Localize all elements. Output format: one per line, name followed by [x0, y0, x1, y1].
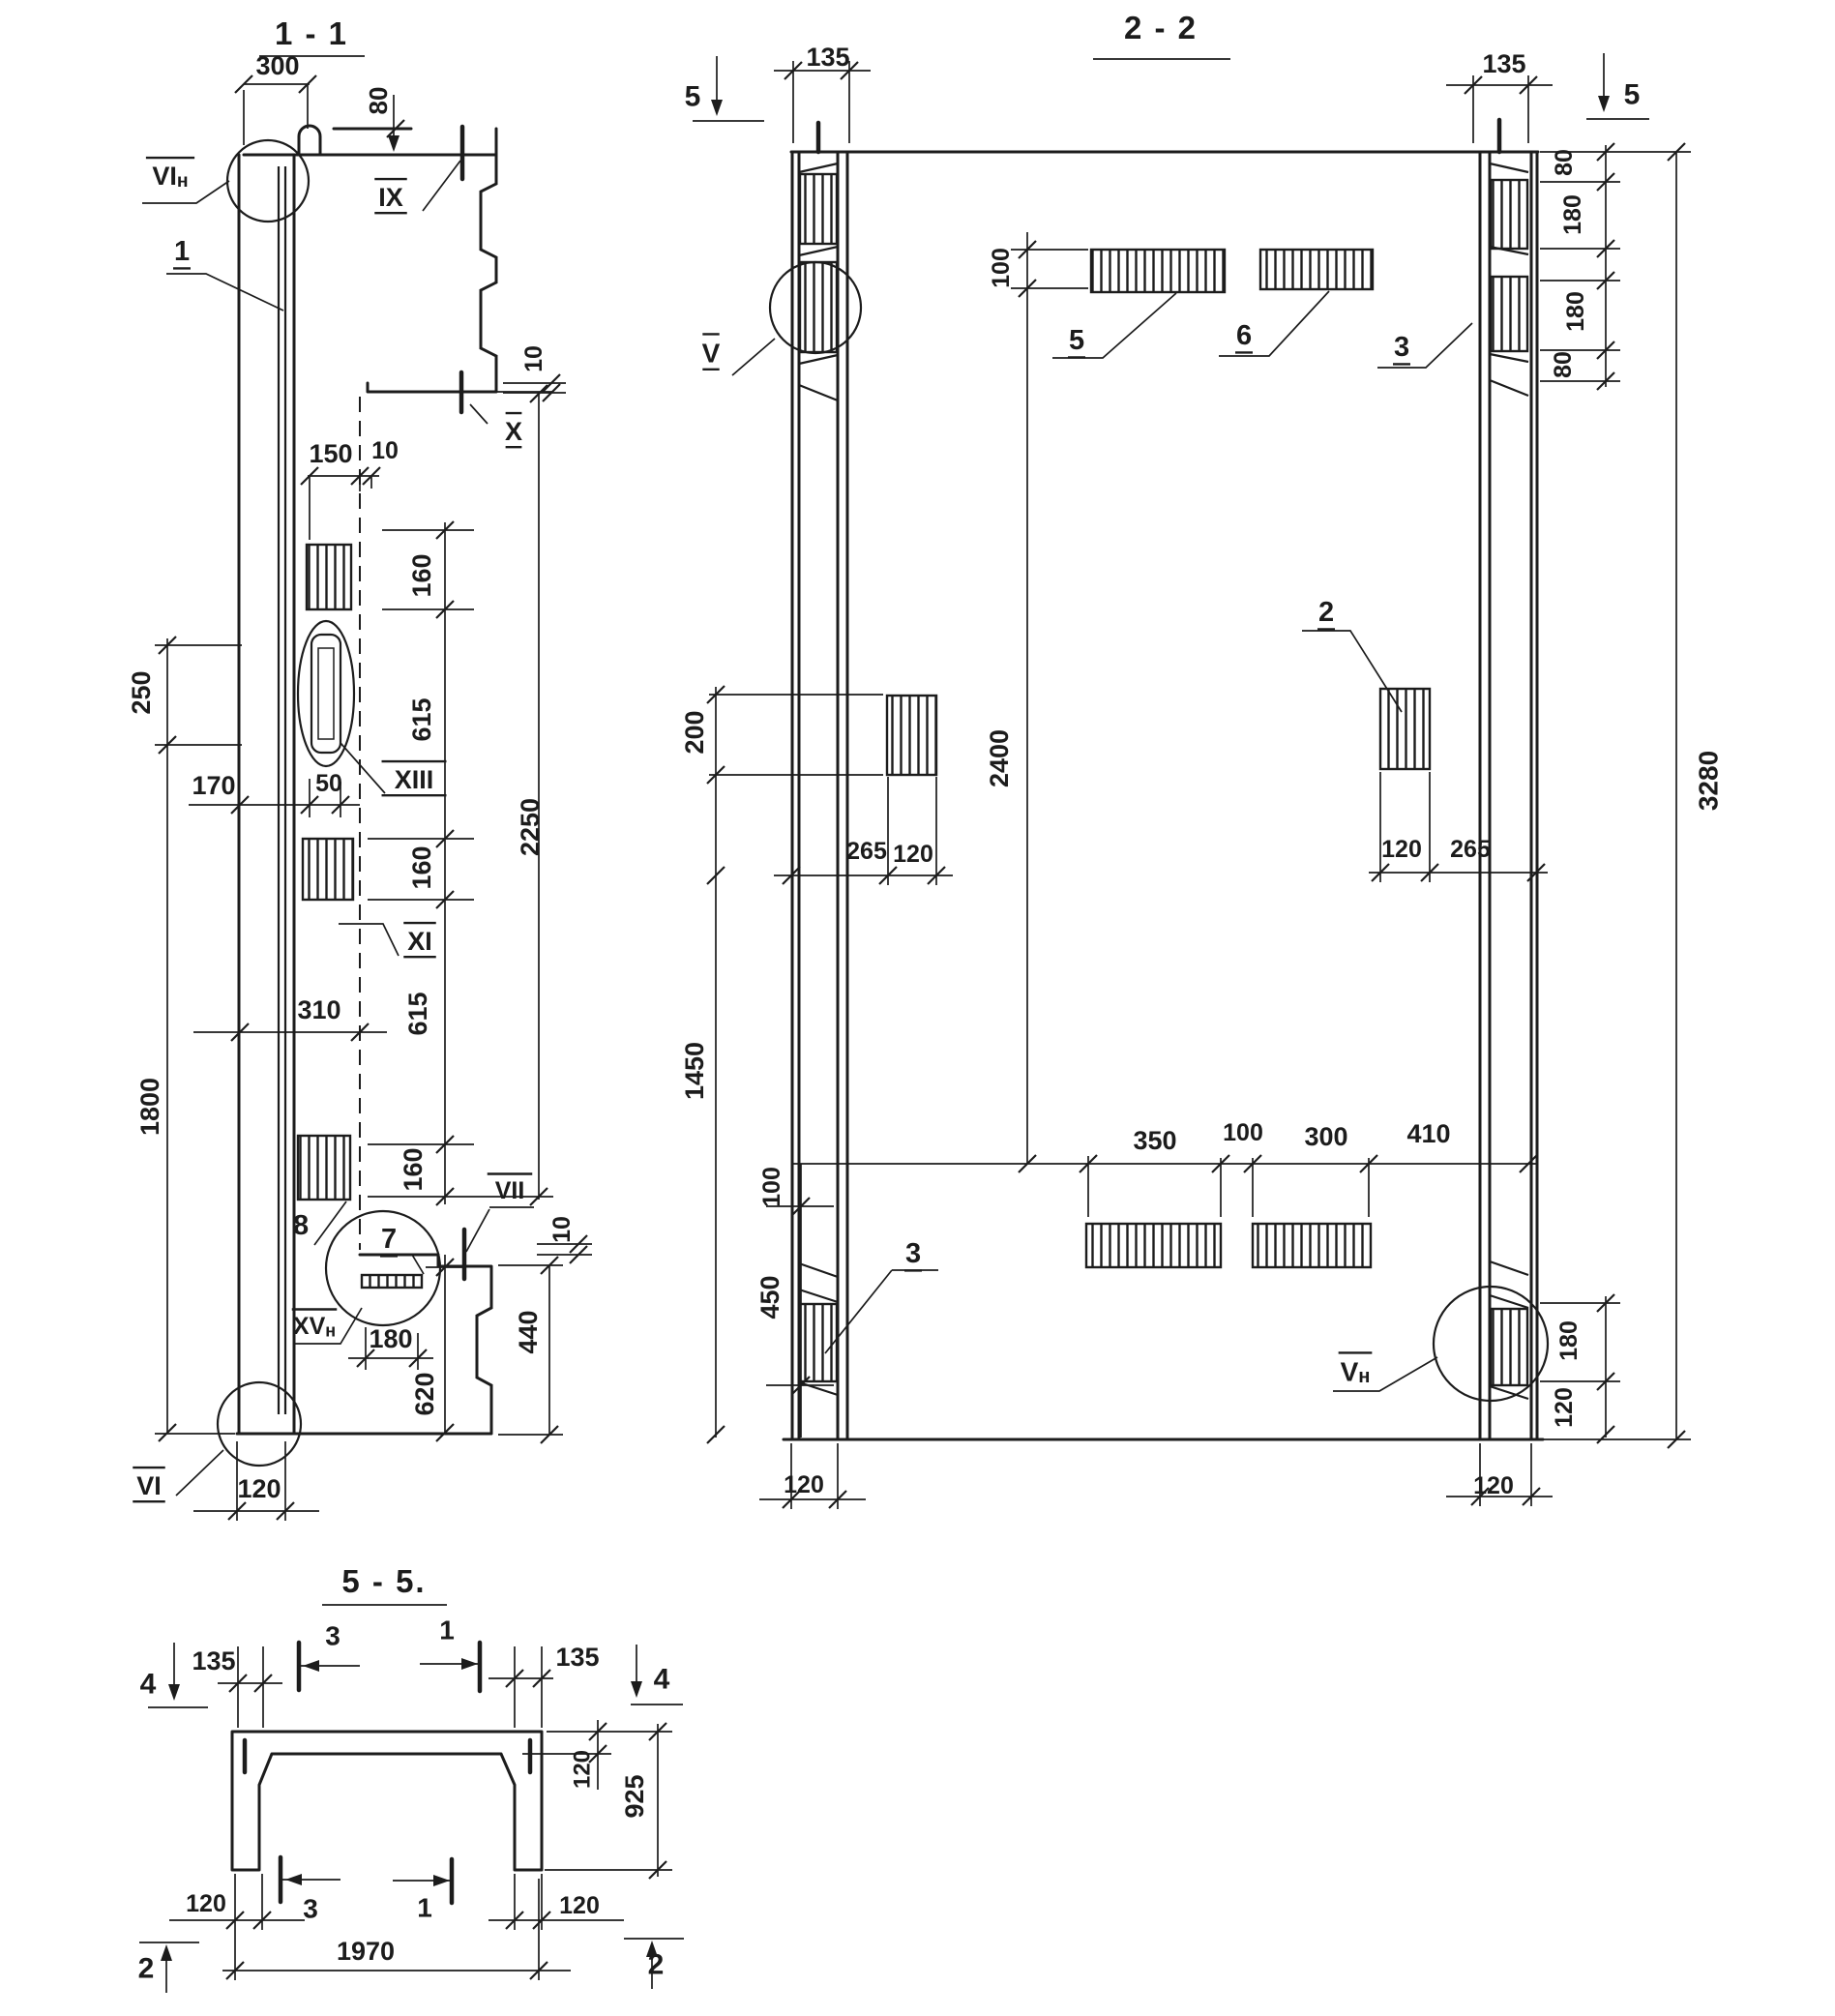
svg-text:1: 1 [439, 1616, 455, 1645]
dim-310: 310 [297, 995, 340, 1024]
svg-text:80: 80 [1551, 149, 1578, 176]
rib-embed-plate [800, 262, 837, 352]
dim-120: 120 [1473, 1472, 1514, 1499]
section-cut-2: 2 [138, 1953, 155, 1985]
svg-text:2: 2 [138, 1953, 155, 1985]
dim-135: 135 [555, 1643, 599, 1672]
section-1-1: 1 - 1 [142, 15, 592, 1521]
svg-text:1450: 1450 [680, 1042, 709, 1100]
dimension-ticks-5-5 [226, 1670, 666, 1979]
detail-oval-xiii [298, 621, 354, 766]
svg-text:160: 160 [407, 845, 436, 889]
dim-135: 135 [192, 1646, 235, 1675]
svg-text:10: 10 [548, 1216, 576, 1243]
svg-text:100: 100 [1223, 1119, 1263, 1146]
section-cut-1: 1 [417, 1893, 432, 1923]
dim-100: 100 [1223, 1119, 1263, 1146]
svg-text:VI: VI [136, 1471, 162, 1500]
dim-80: 80 [1550, 351, 1577, 378]
structural-drawing: 1 - 1 [0, 0, 1835, 2016]
svg-text:2: 2 [1318, 597, 1334, 628]
svg-text:100: 100 [758, 1167, 785, 1207]
rib-embed-plate [1491, 180, 1527, 249]
svg-text:620: 620 [410, 1372, 439, 1415]
dim-120: 120 [893, 841, 933, 868]
arrow-down-80 [388, 135, 400, 152]
dim-135: 135 [1482, 49, 1525, 78]
dim-170: 170 [192, 771, 235, 800]
view-ref-ix: IX [374, 179, 406, 213]
svg-text:80: 80 [364, 87, 393, 115]
svg-text:2400: 2400 [985, 729, 1014, 787]
part-ref-3: 3 [904, 1238, 922, 1270]
dim-620: 620 [410, 1372, 439, 1415]
svg-text:350: 350 [1133, 1126, 1176, 1155]
svg-text:135: 135 [1482, 49, 1525, 78]
svg-text:7: 7 [381, 1224, 397, 1255]
section-2-2: 2 - 2 [693, 10, 1691, 1509]
section-cut-dashes [461, 127, 464, 1279]
svg-text:120: 120 [570, 1750, 596, 1789]
rebar-lines [279, 166, 285, 1414]
svg-text:135: 135 [555, 1643, 599, 1672]
dim-1450: 1450 [680, 1042, 709, 1100]
svg-text:5: 5 [1069, 325, 1084, 356]
dim-450: 450 [755, 1275, 784, 1319]
view-ref-xi: XI [403, 923, 435, 957]
section-cut-3: 3 [303, 1894, 318, 1924]
rib-taper-lines [799, 163, 1528, 1399]
rebar-stubs [818, 120, 1499, 152]
section-title-5-5: 5 - 5. [341, 1563, 426, 1599]
svg-text:170: 170 [192, 771, 235, 800]
embed-plate [1086, 1224, 1221, 1267]
view-ref-vi: VI [133, 1468, 164, 1501]
svg-text:1: 1 [417, 1893, 432, 1923]
dim-100: 100 [758, 1167, 785, 1207]
dim-50: 50 [315, 770, 342, 797]
dim-150: 150 [309, 439, 352, 468]
view-ref-v: V [702, 334, 721, 369]
svg-text:2: 2 [648, 1949, 665, 1981]
svg-text:120: 120 [186, 1890, 226, 1917]
svg-text:250: 250 [127, 670, 156, 714]
part-ref-1: 1 [173, 236, 191, 268]
dim-80: 80 [364, 87, 393, 115]
svg-text:5: 5 [1624, 79, 1641, 111]
rib-embed-plate [1491, 1309, 1527, 1385]
svg-text:615: 615 [407, 697, 436, 741]
section-arrow-5-left [711, 100, 723, 116]
svg-text:1800: 1800 [135, 1078, 164, 1136]
embed-plate-5 [1091, 250, 1225, 292]
dim-2250: 2250 [516, 798, 545, 856]
dim-925: 925 [620, 1774, 649, 1818]
section-arrow-1-top [461, 1658, 478, 1670]
svg-text:10: 10 [520, 345, 548, 372]
svg-text:160: 160 [399, 1147, 428, 1191]
svg-text:120: 120 [1551, 1387, 1578, 1428]
dim-265: 265 [846, 838, 887, 865]
keyway-plate [303, 839, 353, 900]
svg-text:XIII: XIII [395, 765, 434, 794]
dim-120: 120 [784, 1471, 824, 1498]
embed-plate-6 [1260, 250, 1373, 289]
svg-text:3: 3 [325, 1621, 340, 1651]
svg-text:615: 615 [403, 992, 432, 1035]
dim-120: 120 [570, 1750, 596, 1789]
svg-text:450: 450 [755, 1275, 784, 1319]
section-cut-4: 4 [140, 1669, 157, 1701]
svg-text:310: 310 [297, 995, 340, 1024]
svg-text:VIн: VIн [152, 162, 188, 192]
dim-10: 10 [548, 1216, 576, 1243]
svg-text:440: 440 [514, 1310, 543, 1353]
dim-265: 265 [1450, 836, 1491, 863]
dim-1800: 1800 [135, 1078, 164, 1136]
section-arrow-2-left [161, 1944, 172, 1961]
dim-180: 180 [1555, 1320, 1583, 1361]
embed-plate [1253, 1224, 1371, 1267]
dim-2400: 2400 [985, 729, 1014, 787]
svg-text:V: V [702, 339, 721, 369]
dim-440: 440 [514, 1310, 543, 1353]
dim-180: 180 [1562, 291, 1589, 332]
part-ref-5: 5 [1068, 325, 1085, 357]
section-mark-bars [281, 1643, 480, 1903]
dim-135: 135 [806, 43, 849, 72]
section-cut-4: 4 [654, 1664, 670, 1696]
svg-text:1970: 1970 [337, 1937, 395, 1966]
svg-text:135: 135 [192, 1646, 235, 1675]
panel-outline-1-1 [237, 126, 496, 1434]
channel-outline-5-5 [232, 1732, 542, 1870]
section-cut-1: 1 [439, 1616, 455, 1645]
part-ref-7: 7 [380, 1224, 398, 1256]
svg-text:180: 180 [1562, 291, 1589, 332]
detail-circle-vi [218, 1382, 301, 1466]
section-cut-5: 5 [685, 81, 701, 113]
labels-layer: 30080VIнIX1X1015010160615XIII25017050160… [127, 43, 1724, 1985]
section-title-1-1: 1 - 1 [275, 15, 348, 51]
dim-120: 120 [186, 1890, 226, 1917]
dim-120: 120 [559, 1892, 600, 1919]
svg-text:265: 265 [846, 838, 887, 865]
rib-embed-plate [800, 174, 837, 244]
svg-text:160: 160 [407, 553, 436, 597]
svg-text:300: 300 [1304, 1122, 1347, 1151]
svg-text:6: 6 [1236, 320, 1252, 351]
dimension-lines-5-5 [139, 1643, 684, 1993]
rib-embed-plate [1491, 277, 1527, 351]
dim-3280: 3280 [1694, 751, 1724, 811]
svg-text:925: 925 [620, 1774, 649, 1818]
svg-text:4: 4 [140, 1669, 157, 1701]
svg-text:4: 4 [654, 1664, 670, 1696]
svg-text:X: X [505, 417, 522, 446]
section-arrow-4-right [631, 1681, 642, 1698]
dim-250: 250 [127, 670, 156, 714]
dim-10: 10 [371, 437, 399, 464]
rebar-dashes [245, 1740, 530, 1772]
section-arrow-3-bottom [285, 1874, 302, 1885]
svg-text:XVн: XVн [293, 1313, 336, 1341]
svg-text:100: 100 [988, 248, 1015, 288]
section-arrow-5-right [1598, 96, 1610, 112]
dim-615: 615 [407, 697, 436, 741]
part-ref-3: 3 [1393, 332, 1410, 364]
dim-10: 10 [520, 345, 548, 372]
section-title-2-2: 2 - 2 [1124, 10, 1198, 45]
dim-615: 615 [403, 992, 432, 1035]
keyway-plate [307, 545, 351, 609]
svg-text:180: 180 [1555, 1320, 1583, 1361]
dim-80: 80 [1551, 149, 1578, 176]
leader-lines-1-1 [142, 161, 534, 1496]
dim-350: 350 [1133, 1126, 1176, 1155]
view-ref-x: X [505, 413, 522, 447]
blueprint-page: 1 - 1 [0, 0, 1835, 2016]
section-cut-2: 2 [648, 1949, 665, 1981]
keyway-plate [298, 1136, 350, 1200]
dim-410: 410 [1406, 1119, 1450, 1148]
dim-300: 300 [255, 51, 299, 80]
dim-100: 100 [988, 248, 1015, 288]
dim-160: 160 [407, 553, 436, 597]
slot-inner [318, 648, 334, 739]
svg-text:10: 10 [371, 437, 399, 464]
view-ref-vii: VII [488, 1174, 533, 1205]
svg-text:150: 150 [309, 439, 352, 468]
rib-embed-plate [800, 1304, 837, 1381]
svg-text:135: 135 [806, 43, 849, 72]
dim-200: 200 [680, 710, 709, 754]
section-arrow-4-left [168, 1684, 180, 1701]
part-ref-2: 2 [1317, 597, 1335, 629]
dim-120: 120 [1551, 1387, 1578, 1428]
svg-text:300: 300 [255, 51, 299, 80]
svg-text:Vн: Vн [1341, 1357, 1371, 1388]
dim-300: 300 [1304, 1122, 1347, 1151]
svg-text:50: 50 [315, 770, 342, 797]
svg-text:80: 80 [1550, 351, 1577, 378]
part-ref-8: 8 [293, 1210, 309, 1241]
dim-180: 180 [369, 1324, 412, 1353]
svg-text:180: 180 [369, 1324, 412, 1353]
svg-text:IX: IX [378, 183, 403, 212]
part-ref-6: 6 [1235, 320, 1253, 352]
svg-text:1: 1 [174, 236, 190, 267]
view-ref-xv-n: XVн [292, 1310, 338, 1341]
section-5-5: 5 - 5. [139, 1563, 684, 1993]
svg-text:120: 120 [559, 1892, 600, 1919]
view-ref-vi-n: VIн [146, 158, 194, 192]
svg-text:3280: 3280 [1694, 751, 1724, 811]
section-cut-3: 3 [325, 1621, 340, 1651]
svg-text:120: 120 [1381, 836, 1422, 863]
svg-text:3: 3 [303, 1894, 318, 1924]
svg-text:120: 120 [237, 1474, 281, 1503]
dim-160: 160 [407, 845, 436, 889]
section-arrow-1-bottom [433, 1875, 450, 1886]
dim-160: 160 [399, 1147, 428, 1191]
dim-180: 180 [1559, 194, 1586, 235]
svg-text:120: 120 [893, 841, 933, 868]
svg-text:XI: XI [407, 927, 432, 956]
embed-plate [887, 696, 936, 775]
dim-1970: 1970 [337, 1937, 395, 1966]
svg-text:VII: VII [495, 1177, 525, 1204]
svg-text:5: 5 [685, 81, 701, 113]
svg-text:200: 200 [680, 710, 709, 754]
view-ref-xiii: XIII [382, 761, 447, 795]
view-ref-v-n: Vн [1339, 1352, 1373, 1387]
svg-text:120: 120 [1473, 1472, 1514, 1499]
dim-120: 120 [237, 1474, 281, 1503]
dim-120: 120 [1381, 836, 1422, 863]
weld-strip [362, 1275, 422, 1288]
section-arrow-3-top [303, 1660, 319, 1672]
section-cut-5: 5 [1624, 79, 1641, 111]
slot-outline [311, 635, 340, 753]
svg-text:3: 3 [1394, 332, 1409, 363]
svg-text:2250: 2250 [516, 798, 545, 856]
svg-text:3: 3 [905, 1238, 921, 1269]
svg-text:180: 180 [1559, 194, 1586, 235]
svg-text:410: 410 [1406, 1119, 1450, 1148]
embed-plate-2 [1380, 689, 1430, 769]
svg-text:120: 120 [784, 1471, 824, 1498]
svg-text:265: 265 [1450, 836, 1491, 863]
svg-text:8: 8 [293, 1210, 309, 1241]
